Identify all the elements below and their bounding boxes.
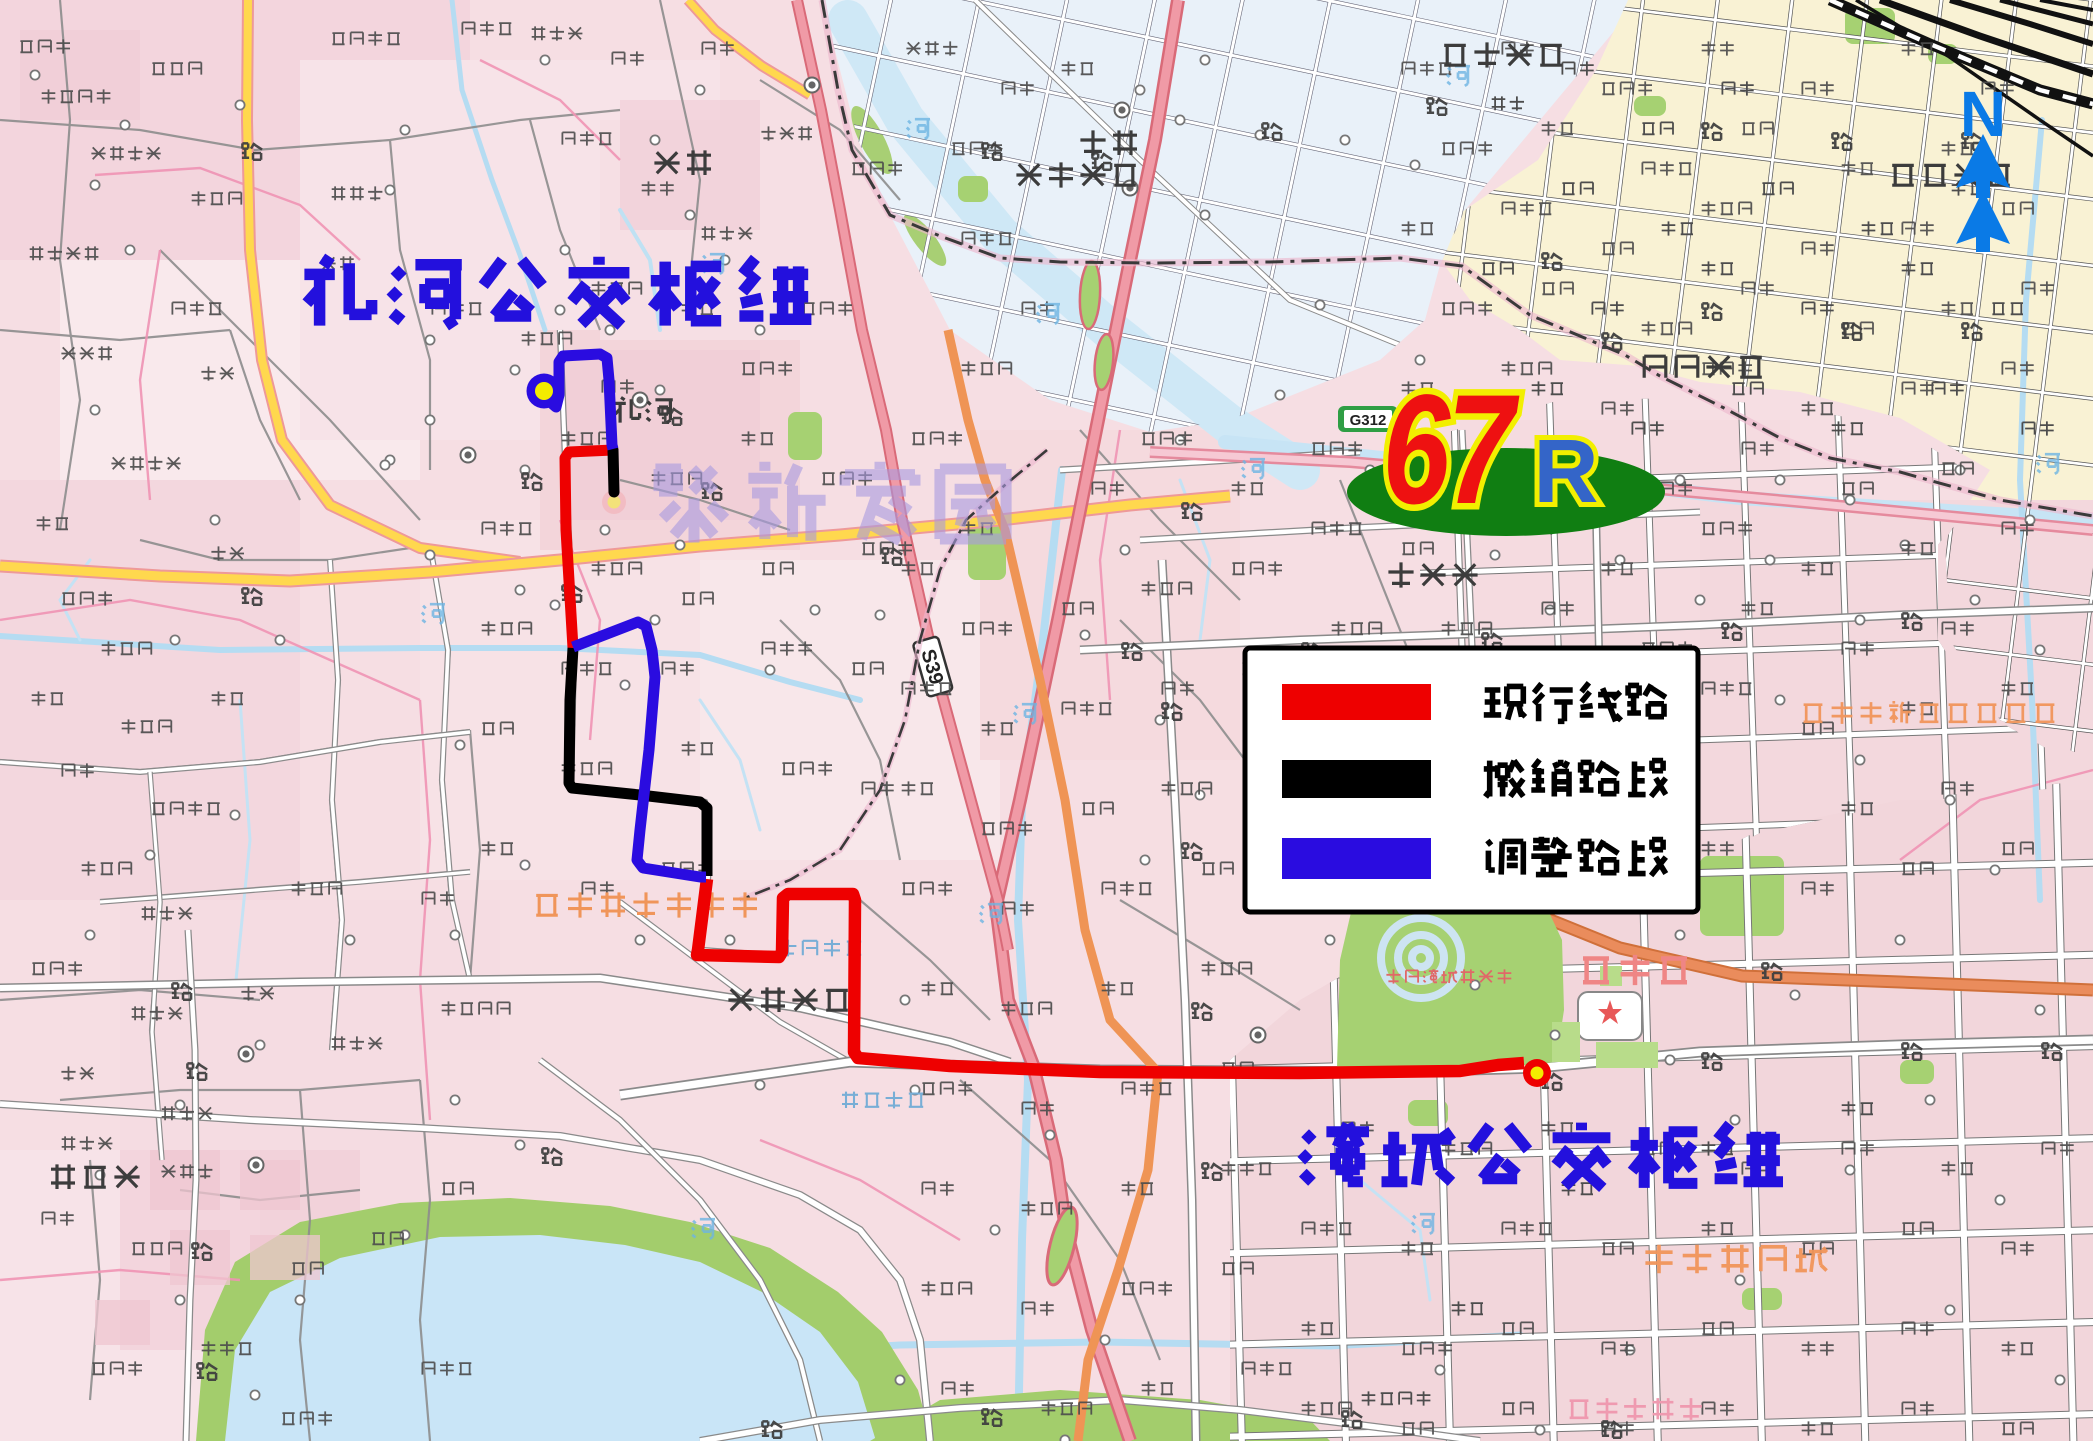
svg-text:67: 67 (1382, 361, 1520, 536)
svg-text:G312: G312 (1350, 412, 1387, 429)
svg-text:R: R (1534, 422, 1599, 522)
